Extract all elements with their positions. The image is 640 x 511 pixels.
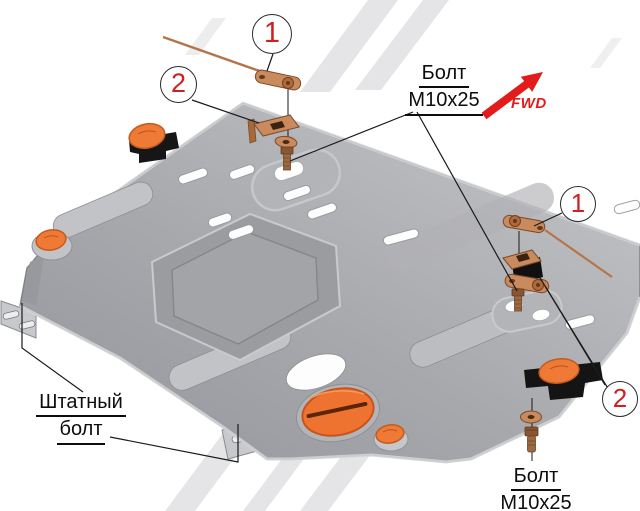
label-line: Болт — [511, 464, 562, 491]
callout-number: 2 — [613, 383, 627, 414]
callout-number: 1 — [264, 17, 280, 50]
label-bolt-bottom: Болт М10х25 — [492, 464, 580, 511]
callout-1-right: 1 — [560, 186, 596, 222]
diagram-canvas: 1 2 1 2 Болт М10х25 Штатный болт Болт М1… — [0, 0, 640, 511]
bolt — [525, 427, 538, 452]
label-line: М10х25 — [405, 88, 482, 115]
mounting-strip — [254, 69, 302, 91]
label-stock-bolt: Штатный болт — [26, 390, 136, 445]
callout-number: 1 — [571, 188, 585, 219]
label-line: Болт — [419, 61, 470, 88]
label-line: Штатный — [36, 390, 126, 417]
leader-callout-1-top — [267, 54, 273, 71]
label-bolt-top: Болт М10х25 — [398, 61, 490, 116]
callout-number: 2 — [171, 68, 186, 99]
washer — [521, 411, 542, 423]
callout-2-left: 2 — [160, 66, 197, 103]
callout-2-right: 2 — [602, 381, 638, 417]
label-line: М10х25 — [497, 491, 574, 511]
fwd-direction-text: FWD — [511, 95, 547, 112]
label-line: болт — [57, 417, 106, 444]
callout-1-top: 1 — [252, 14, 292, 54]
watermark-bar — [590, 38, 622, 68]
watermark-bar — [185, 18, 226, 55]
